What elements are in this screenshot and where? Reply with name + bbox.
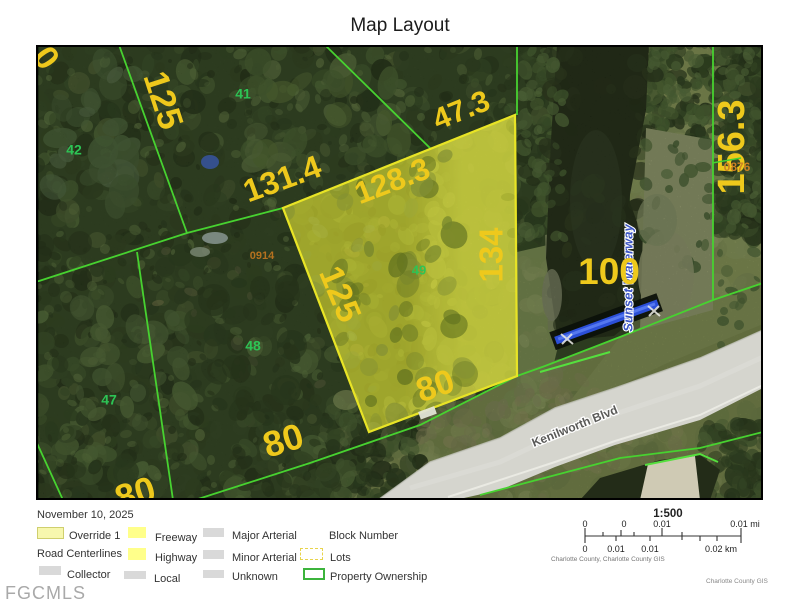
svg-text:47: 47 <box>101 392 117 408</box>
svg-text:0876: 0876 <box>724 160 751 174</box>
svg-text:0: 0 <box>621 520 626 529</box>
svg-text:0.01: 0.01 <box>607 544 625 554</box>
svg-text:134: 134 <box>473 227 510 283</box>
svg-text:48: 48 <box>245 338 261 354</box>
svg-text:0.01: 0.01 <box>641 544 659 554</box>
svg-text:0.01: 0.01 <box>653 520 671 529</box>
svg-text:100: 100 <box>578 251 640 292</box>
svg-text:42: 42 <box>66 142 82 158</box>
svg-text:41: 41 <box>235 86 251 102</box>
svg-text:0.01 mi: 0.01 mi <box>730 520 760 529</box>
svg-text:0.02 km: 0.02 km <box>705 544 737 554</box>
svg-text:0914: 0914 <box>250 250 275 262</box>
svg-text:156.3: 156.3 <box>711 99 753 194</box>
svg-text:49: 49 <box>412 262 426 277</box>
svg-text:0: 0 <box>582 544 587 554</box>
svg-text:0: 0 <box>582 520 587 529</box>
